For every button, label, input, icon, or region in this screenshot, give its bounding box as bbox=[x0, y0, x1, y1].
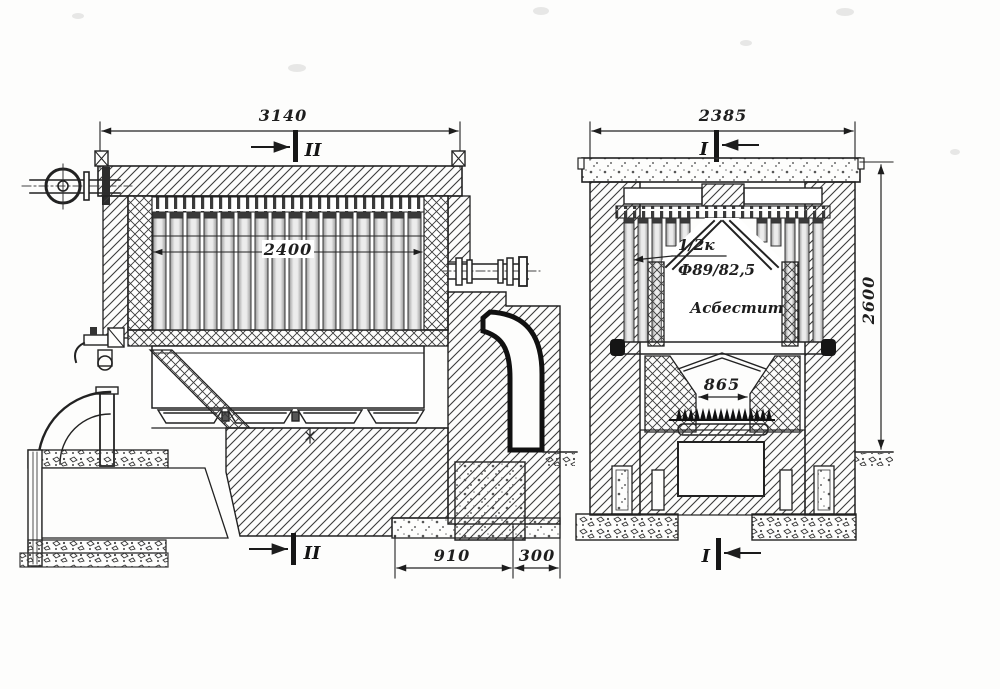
section-mark-II-bottom: II bbox=[250, 533, 321, 565]
side-steam-pipe bbox=[442, 257, 540, 286]
section-I-top-label: I bbox=[699, 139, 709, 160]
section-II-bottom-label: II bbox=[303, 543, 321, 564]
dim-300-label: 300 bbox=[519, 546, 555, 565]
dim-grate-opening: 865 bbox=[699, 375, 747, 397]
foundation-right-view bbox=[576, 514, 856, 540]
left-wall bbox=[103, 196, 128, 338]
right-lattice-column bbox=[782, 262, 798, 346]
dim-865-label: 865 bbox=[703, 375, 740, 394]
insulation-label: Асбестит bbox=[689, 299, 784, 317]
boiler-top-slab bbox=[95, 151, 465, 196]
boiler-sectional-drawing: 3140 II bbox=[0, 0, 1000, 689]
front-foundation bbox=[20, 450, 228, 567]
scan-artifacts bbox=[72, 7, 960, 155]
section-II-top-label: II bbox=[304, 140, 322, 161]
tube-bundle bbox=[128, 196, 448, 346]
section-I-bottom-label: I bbox=[701, 546, 711, 567]
section-mark-II-top: II bbox=[252, 130, 322, 162]
top-header-plates bbox=[624, 184, 822, 206]
foundation-strip bbox=[392, 518, 560, 538]
left-lattice-column bbox=[648, 262, 664, 346]
dim-overall-height: 2600 bbox=[859, 162, 893, 449]
tube-size-label: Ф89/82,5 bbox=[678, 261, 755, 279]
left-view: 3140 II bbox=[20, 106, 560, 578]
concrete-block bbox=[455, 462, 525, 524]
right-view: 2385 I bbox=[543, 106, 893, 570]
grate-troughs bbox=[158, 410, 424, 423]
upper-tube-header-row bbox=[616, 206, 830, 218]
furnace-roof-lines bbox=[678, 353, 766, 371]
dim-2400-label: 2400 bbox=[263, 240, 313, 259]
dim-2600-label: 2600 bbox=[859, 276, 878, 326]
section-mark-I-bottom: I bbox=[701, 538, 760, 570]
section-mark-I-top: I bbox=[699, 130, 758, 162]
front-door-mechanism bbox=[75, 327, 124, 370]
dim-3140-label: 3140 bbox=[259, 106, 308, 125]
dim-2385-label: 2385 bbox=[698, 106, 748, 125]
ash-pit-opening bbox=[678, 442, 764, 496]
right-wall-top bbox=[448, 196, 470, 262]
dim-910-label: 910 bbox=[434, 546, 470, 565]
dim-overall-width-left: 3140 bbox=[100, 106, 460, 168]
tube-note-label: 1/2к bbox=[678, 236, 715, 254]
dim-overall-width-right: 2385 bbox=[590, 106, 855, 160]
lower-masonry bbox=[612, 430, 834, 515]
top-cover-slab bbox=[578, 158, 864, 182]
drawing-canvas: 3140 II bbox=[0, 0, 1000, 689]
